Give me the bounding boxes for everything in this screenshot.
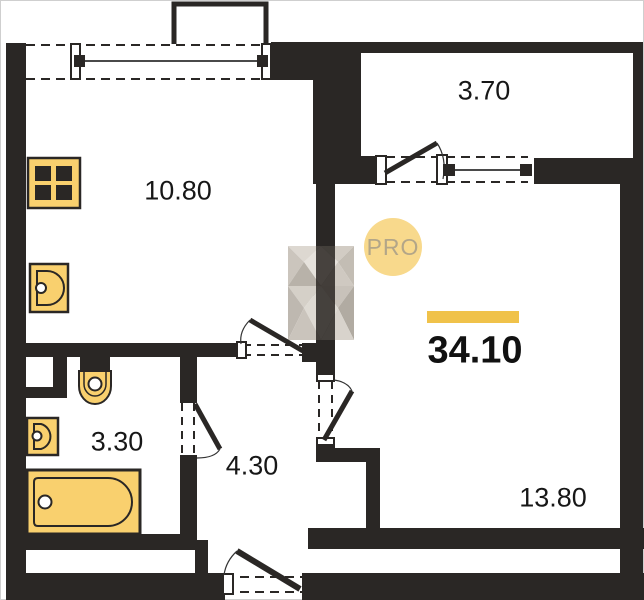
pro-badge: PRO [364,218,422,276]
stove-icon [28,158,80,208]
kitchen-door [237,320,303,358]
floor-plan: 10.80 3.70 3.30 4.30 13.80 34.10 PRO [0,0,644,600]
wall-kitchen-living [316,162,335,381]
total-area-label: 34.10 [427,330,522,373]
living-room-door [317,374,352,445]
wall-kitchen-door-post [302,343,317,362]
bathroom-sink-icon [27,418,58,455]
kitchen-window [26,44,271,79]
bathtub-icon [27,470,140,534]
wall-kitchen-bottom [6,343,243,357]
upper-balcony-outline [174,4,266,44]
wall-living-bottom-inner [308,528,644,549]
wall-bath-hall-top [180,355,197,403]
total-area-accent-bar [427,311,519,323]
wall-bath-hall-bottom [180,455,197,540]
living-area-label: 13.80 [519,483,587,514]
wall-shaft-bottom [26,387,67,398]
wall-balcony-top [361,42,633,53]
balcony-window [443,164,532,176]
hallway-area-label: 4.30 [226,451,279,482]
kitchen-area-label: 10.80 [144,176,212,207]
kitchen-sink-icon [30,264,68,312]
balcony-area-label: 3.70 [458,76,511,107]
bathroom-door [182,403,220,458]
pro-badge-label: PRO [367,234,420,261]
wall-left [6,43,26,600]
wall-bathroom-bottom [26,534,197,550]
toilet-icon [79,355,111,404]
entrance-door [223,551,302,594]
wall-right-of-balcony-window [534,158,620,184]
wall-bottom-outer-left [6,573,225,600]
wall-step-horizontal [316,448,380,462]
wall-hall-left-stub [195,540,208,600]
bathroom-area-label: 3.30 [91,427,144,458]
wall-bottom-outer-right [302,573,644,600]
wall-shaft-chunk [313,42,361,162]
balcony-door [376,143,528,184]
